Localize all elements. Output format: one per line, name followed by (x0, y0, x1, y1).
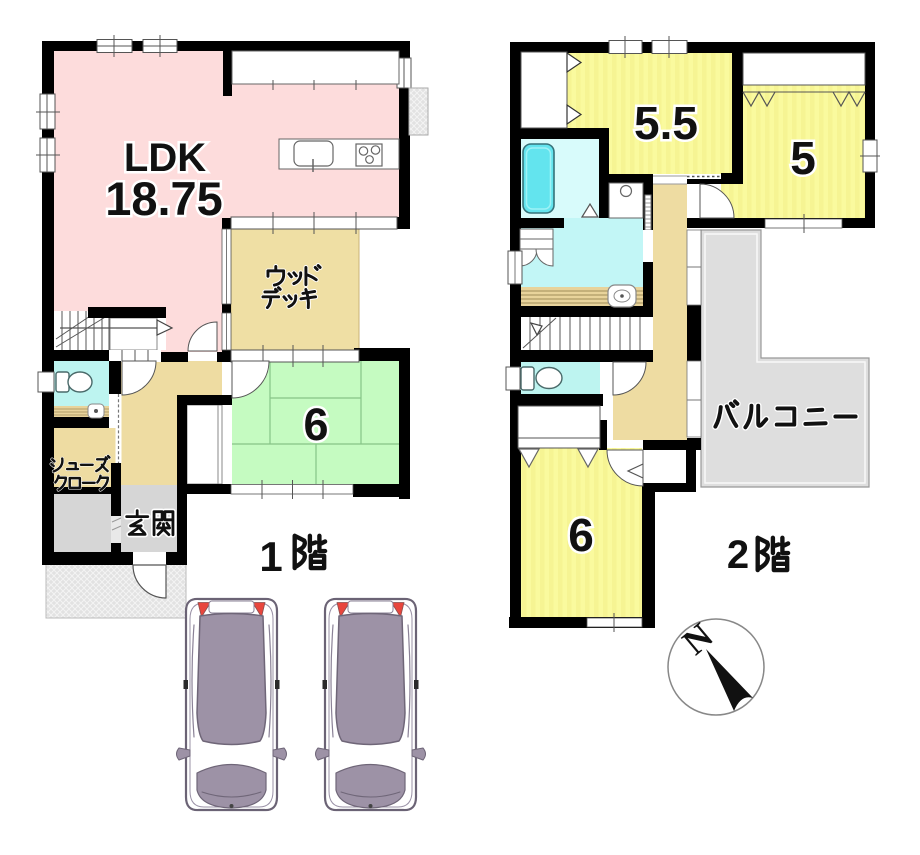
svg-text:1: 1 (259, 533, 282, 580)
svg-text:6: 6 (303, 399, 328, 450)
svg-text:5.5: 5.5 (634, 97, 698, 149)
svg-text:2: 2 (727, 533, 749, 577)
svg-text:6: 6 (568, 509, 594, 561)
svg-text:18.75: 18.75 (105, 172, 223, 225)
svg-text:5: 5 (790, 132, 816, 184)
